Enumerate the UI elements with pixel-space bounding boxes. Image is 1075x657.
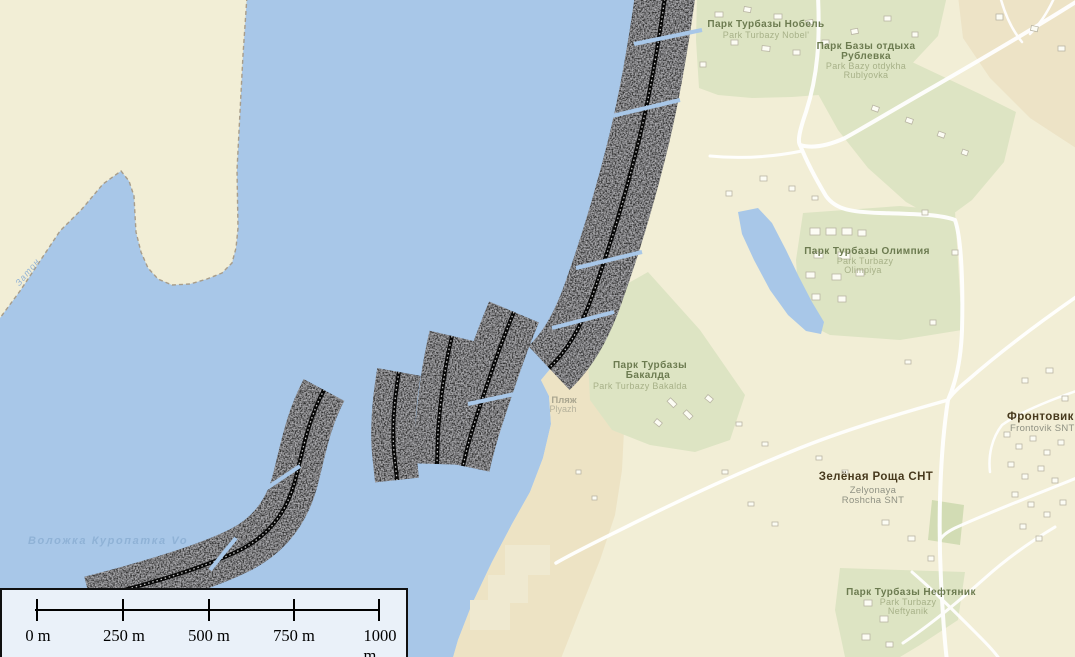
snt-label-zelyonaya-en2: Roshcha SNT [842, 496, 904, 506]
park-label-nobel-en: Park Turbazy Nobel' [723, 31, 809, 40]
label-layer: Парк Турбазы Нобель Park Turbazy Nobel' … [0, 0, 1075, 657]
scale-label-500: 500 m [188, 626, 230, 646]
park-label-rublevka-en2: Rublyovka [844, 71, 889, 80]
scale-tick [378, 599, 380, 621]
park-label-nobel-ru: Парк Турбазы Нобель [707, 20, 824, 30]
scale-tick [122, 599, 124, 621]
snt-label-zelyonaya-ru: Зелёная Роща СНТ [819, 472, 933, 484]
scale-tick [293, 599, 295, 621]
park-label-bakalda-en: Park Turbazy Bakalda [593, 382, 687, 391]
scale-bar: 0 m 250 m 500 m 750 m 1000 m [0, 588, 408, 657]
scale-label-0: 0 m [25, 626, 50, 646]
scale-label-1000: 1000 m [364, 626, 397, 657]
park-label-olimpiya-en2: Olimpiya [844, 266, 881, 275]
map-viewport[interactable]: Воложка Куропатка Vo Затон [0, 0, 1075, 657]
scale-tick [208, 599, 210, 621]
scale-bar-line [35, 609, 379, 611]
scale-tick [36, 599, 38, 621]
beach-label-plyazh-en: Plyazh [549, 405, 576, 414]
park-label-bakalda-ru2: Бакалда [626, 371, 670, 381]
scale-label-250: 250 m [103, 626, 145, 646]
snt-label-frontovik-ru: Фронтовик СНТ [1007, 412, 1075, 424]
park-label-neftyanik-en2: Neftyanik [888, 607, 928, 616]
snt-label-frontovik-en: Frontovik SNT [1010, 424, 1075, 434]
scale-label-750: 750 m [273, 626, 315, 646]
